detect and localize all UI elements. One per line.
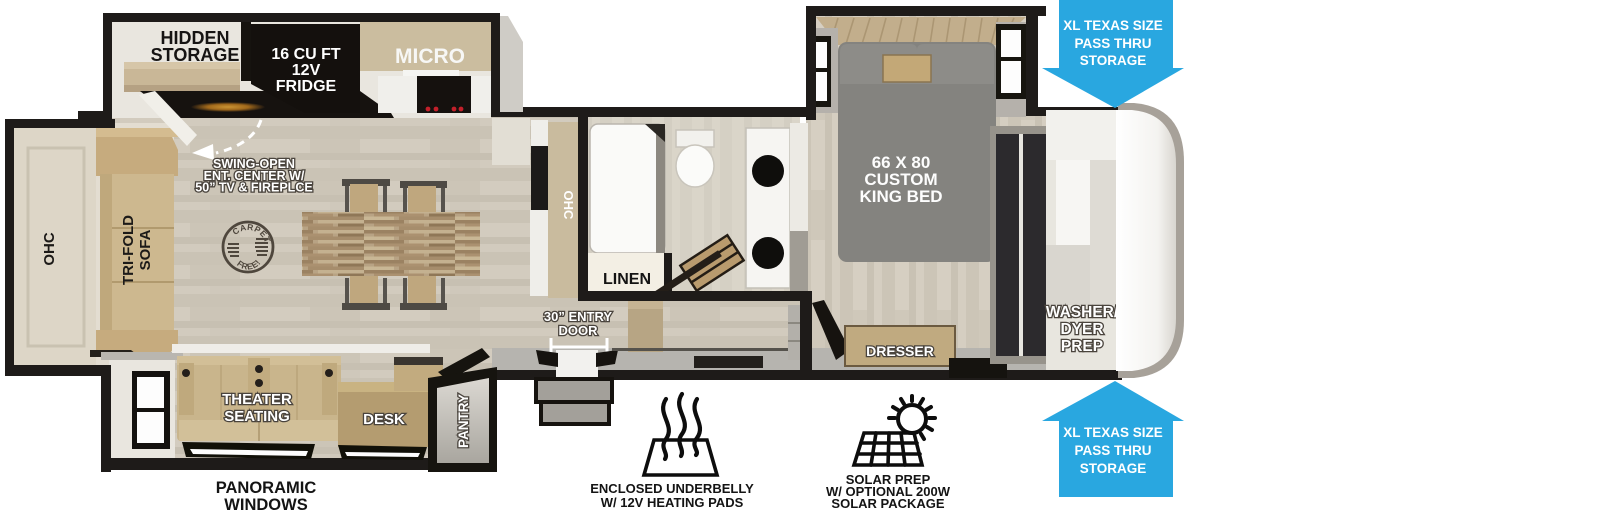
svg-text:DESK: DESK: [363, 411, 405, 428]
svg-text:PASS THRU: PASS THRU: [1074, 443, 1151, 458]
svg-text:SOFA: SOFA: [137, 229, 154, 270]
svg-text:OHC: OHC: [561, 191, 576, 221]
svg-text:PASS THRU: PASS THRU: [1074, 36, 1151, 51]
svg-text:TRI-FOLD: TRI-FOLD: [120, 215, 137, 285]
svg-text:PREP: PREP: [1061, 338, 1103, 355]
svg-text:MICRO: MICRO: [395, 45, 465, 68]
svg-text:50” TV & FIREPLCE: 50” TV & FIREPLCE: [195, 181, 312, 195]
svg-text:XL TEXAS SIZE: XL TEXAS SIZE: [1063, 425, 1163, 440]
svg-text:KING BED: KING BED: [859, 187, 942, 206]
svg-text:SEATING: SEATING: [224, 408, 290, 425]
svg-text:DOOR: DOOR: [559, 323, 599, 338]
svg-text:STORAGE: STORAGE: [1080, 461, 1147, 476]
svg-text:FRIDGE: FRIDGE: [276, 78, 337, 95]
svg-text:XL TEXAS SIZE: XL TEXAS SIZE: [1063, 18, 1163, 33]
svg-text:16 CU FT: 16 CU FT: [271, 46, 341, 63]
svg-text:WINDOWS: WINDOWS: [224, 496, 307, 511]
svg-text:THEATER: THEATER: [222, 391, 292, 408]
svg-text:SOLAR PACKAGE: SOLAR PACKAGE: [831, 496, 944, 511]
svg-text:PANTRY: PANTRY: [456, 394, 471, 448]
svg-text:W/ 12V HEATING PADS: W/ 12V HEATING PADS: [601, 495, 744, 510]
svg-text:12V: 12V: [292, 62, 321, 79]
svg-text:WASHER/: WASHER/: [1046, 304, 1119, 321]
svg-text:LINEN: LINEN: [603, 271, 651, 288]
svg-text:DRESSER: DRESSER: [866, 343, 934, 359]
svg-text:ENCLOSED UNDERBELLY: ENCLOSED UNDERBELLY: [590, 481, 754, 496]
svg-text:30” ENTRY: 30” ENTRY: [544, 309, 612, 324]
svg-text:DYER: DYER: [1060, 321, 1103, 338]
svg-text:OHC: OHC: [41, 232, 58, 266]
svg-text:STORAGE: STORAGE: [1080, 53, 1147, 68]
svg-text:PANORAMIC: PANORAMIC: [216, 479, 317, 497]
